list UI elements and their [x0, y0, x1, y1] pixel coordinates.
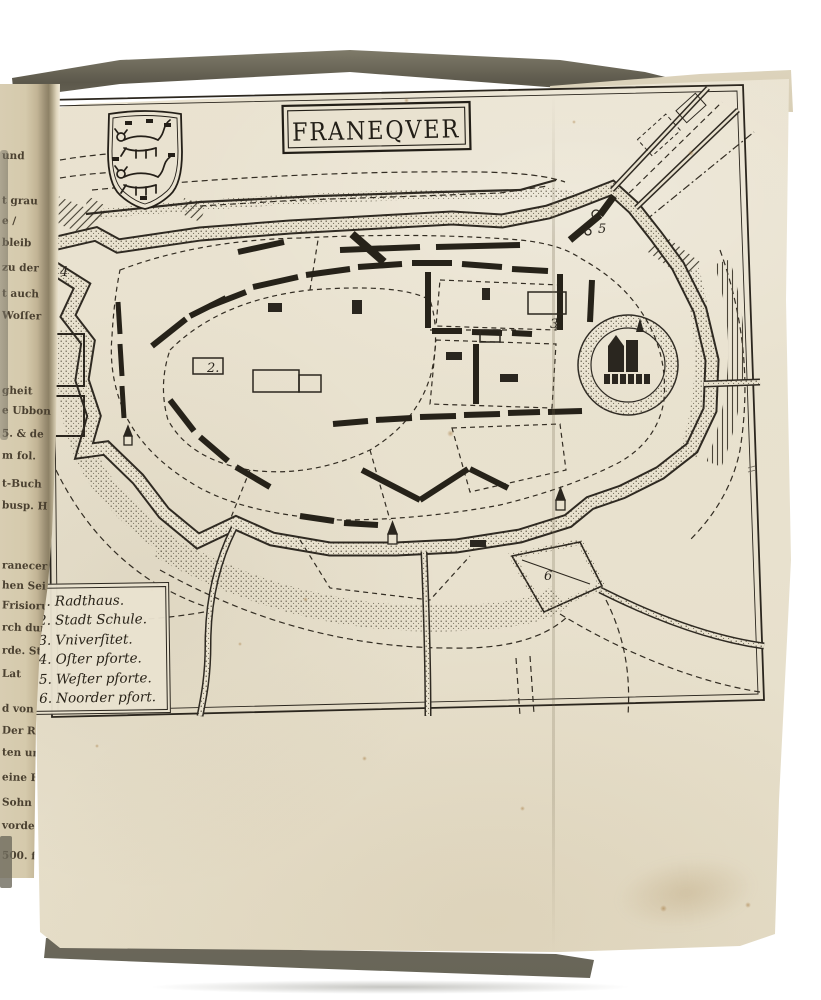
- map-marker: 2.: [206, 361, 219, 376]
- legend-number: 5.: [39, 670, 56, 690]
- map-title: FRANEQVER: [292, 114, 461, 147]
- margin-fragment: hen Sei: [2, 579, 46, 592]
- foxing-spot: [688, 150, 694, 156]
- legend-number: 4.: [39, 651, 56, 671]
- legend-item: 4.Oſter pforte.: [39, 649, 164, 670]
- margin-fragment: e Ubbon: [2, 404, 51, 417]
- foxing-spot: [520, 806, 525, 811]
- legend-label: Oſter pforte.: [56, 650, 142, 671]
- legend-label: Stadt Schule.: [55, 610, 147, 631]
- margin-fragment: Frisioru: [2, 599, 49, 612]
- foxing-spot: [447, 430, 454, 437]
- legend-item: 2.Stadt Schule.: [38, 610, 163, 631]
- legend-item: 1.Radthaus.: [38, 591, 163, 612]
- foxing-spot: [238, 642, 242, 646]
- gate-towers: [124, 210, 600, 544]
- coat-of-arms: [108, 111, 182, 209]
- map-marker: 5: [598, 222, 606, 237]
- foxing-spot: [572, 120, 576, 124]
- margin-fragment: 5. & de: [2, 427, 44, 440]
- margin-fragment: rde. St: [2, 644, 42, 657]
- legend-number: 6.: [39, 690, 56, 710]
- legend-item: 5.Weſter pforte.: [39, 669, 164, 690]
- engraver-mark: [748, 466, 756, 472]
- foxing-spot: [303, 597, 308, 602]
- foxing-spot: [660, 905, 667, 912]
- book-edge-sliver: [0, 836, 12, 888]
- legend-label: Noorder pfort.: [56, 689, 156, 710]
- margin-fragment: busp. H: [2, 499, 48, 512]
- foxing-spot: [95, 744, 99, 748]
- book-photo: FRANEQVER: [0, 0, 821, 1000]
- margin-fragment: d von: [2, 703, 34, 716]
- margin-fragment: Lat: [2, 668, 21, 680]
- legend-item: 3.Vniverſitet.: [38, 630, 163, 651]
- foxing-spot: [362, 756, 367, 761]
- margin-fragment: m fol.: [2, 450, 36, 463]
- foxing-spot: [745, 902, 751, 908]
- foxing-spot: [404, 98, 409, 103]
- city-map-engraving: FRANEQVER: [0, 0, 821, 1000]
- map-marker: 4: [59, 265, 68, 280]
- legend-label: Weſter pforte.: [56, 669, 152, 690]
- legend-item: 6.Noorder pfort.: [39, 689, 164, 710]
- legend-label: Vniverſitet.: [55, 630, 133, 651]
- legend-label: Radthaus.: [55, 591, 125, 612]
- legend-inner-border: 1.Radthaus. 2.Stadt Schule. 3.Vniverſite…: [31, 586, 168, 712]
- legend-box: 1.Radthaus. 2.Stadt Schule. 3.Vniverſite…: [27, 582, 171, 715]
- margin-fragment: rch dur: [2, 621, 46, 634]
- fold-crease: [552, 96, 555, 952]
- margin-fragment: t-Buch: [2, 477, 42, 490]
- title-cartouche: FRANEQVER: [283, 102, 471, 153]
- book-edge-sliver: [0, 150, 8, 440]
- margin-fragment: ranecer: [2, 559, 48, 572]
